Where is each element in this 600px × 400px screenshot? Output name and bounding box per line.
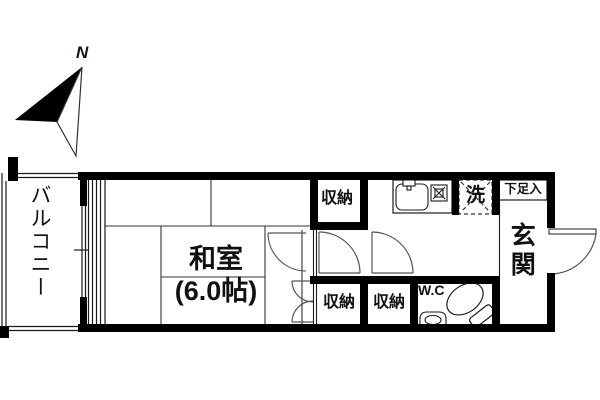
sliding-window-lines [74, 180, 105, 324]
north-label: N [76, 44, 88, 62]
washer-label: 洗 [466, 186, 485, 206]
wc-label: W.C [418, 283, 444, 298]
floor-plan-drawing [0, 0, 600, 400]
entrance-label: 玄関 [508, 222, 534, 280]
hand-basin-icon [420, 312, 446, 325]
japanese-room-size: (6.0帖) [151, 277, 281, 305]
japanese-room-label: 和室 [161, 245, 271, 273]
entrance-door-leaf [549, 229, 596, 234]
balcony-label: バルコニー [28, 184, 50, 299]
storage-top-label: 収納 [312, 191, 362, 208]
north-arrow-icon [15, 67, 82, 156]
toilet-icon [441, 276, 496, 328]
storage-bottom-right-label: 収納 [364, 295, 414, 312]
storage-bottom-left-label: 収納 [314, 295, 364, 312]
floor-plan: N バルコニー 和室 (6.0帖) 収納 収納 収納 W.C 洗 下足入 玄関 [0, 0, 600, 400]
shoe-storage-label: 下足入 [500, 183, 546, 196]
